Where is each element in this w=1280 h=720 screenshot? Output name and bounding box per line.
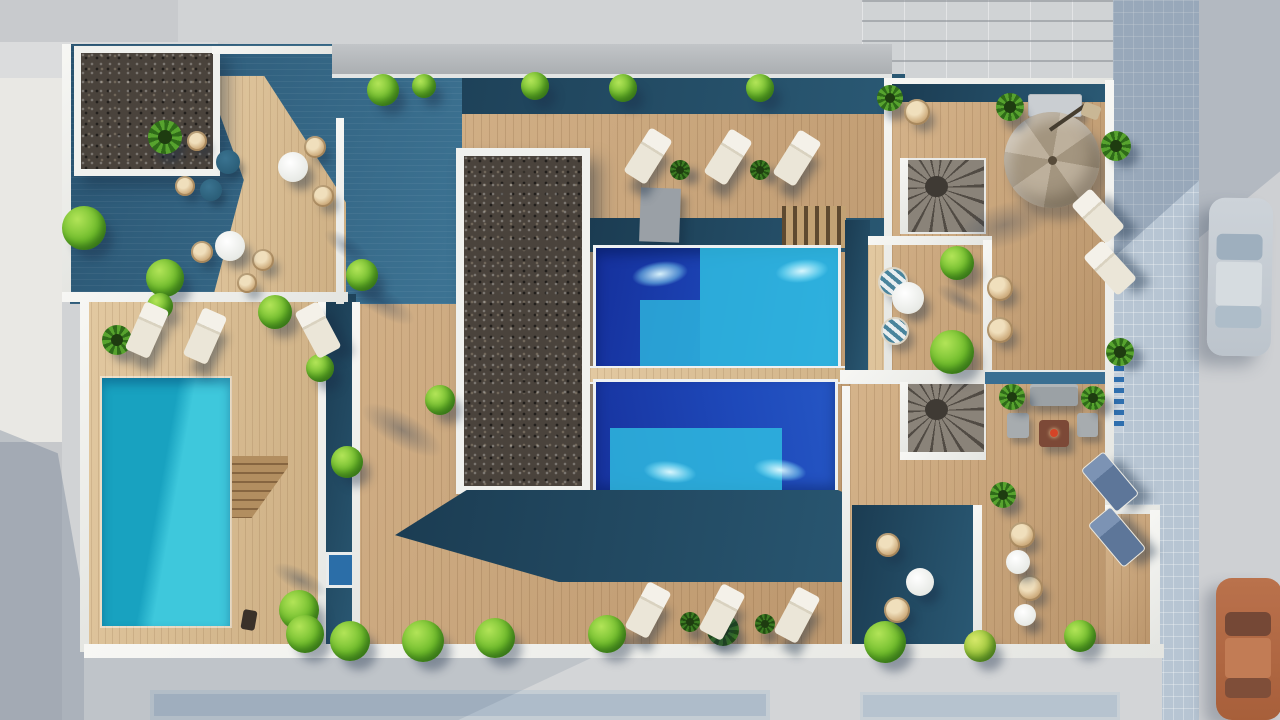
bush	[521, 72, 549, 100]
wicker-chair	[304, 136, 326, 158]
wicker-chair	[187, 131, 207, 151]
wicker-chair	[1009, 522, 1035, 548]
pool-steps-upper	[782, 206, 846, 248]
street-top-left-block	[0, 0, 178, 42]
car-shadow-overlay	[1216, 578, 1280, 720]
bush	[746, 74, 774, 102]
spiral-staircase-lower	[906, 382, 986, 456]
facade-panel-right	[860, 692, 1120, 720]
bush	[286, 615, 324, 653]
parapet	[900, 158, 908, 234]
wicker-chair	[237, 273, 257, 293]
bush	[930, 330, 974, 374]
parapet	[352, 302, 360, 652]
bush	[306, 354, 334, 382]
parapet	[1150, 510, 1160, 650]
round-table	[1014, 604, 1036, 626]
car-white	[1207, 197, 1274, 356]
bush	[402, 620, 444, 662]
car-orange	[1216, 578, 1280, 720]
parapet	[842, 386, 850, 644]
gravel-strip	[456, 148, 590, 494]
left-pool	[102, 378, 230, 626]
parapet	[62, 292, 348, 302]
round-table	[1006, 550, 1030, 574]
round-table	[278, 152, 308, 182]
wicker-chair	[252, 249, 274, 271]
round-table	[906, 568, 934, 596]
bush	[1064, 620, 1096, 652]
teal-strip-right	[845, 220, 870, 380]
striped-chair	[881, 317, 909, 345]
wicker-chair	[175, 176, 195, 196]
parapet	[212, 46, 338, 54]
umbrella-hub	[1048, 156, 1057, 165]
bush	[609, 74, 637, 102]
bush	[346, 259, 378, 291]
bush	[146, 259, 184, 297]
bush	[588, 615, 626, 653]
car-roof	[1215, 262, 1262, 307]
round-table	[892, 282, 924, 314]
bush	[62, 206, 106, 250]
round-table-teal	[200, 179, 222, 201]
parapet-bottom	[84, 644, 1164, 658]
neighbor-building-roof	[862, 0, 1113, 84]
round-table	[215, 231, 245, 261]
parapet	[840, 370, 992, 383]
armchair-left	[1007, 413, 1029, 438]
bush	[258, 295, 292, 329]
parapet	[62, 44, 71, 302]
car-windshield	[1216, 234, 1262, 261]
wicker-chair	[987, 317, 1013, 343]
bush	[331, 446, 363, 478]
pool-lower	[596, 382, 835, 492]
wicker-chair	[884, 597, 910, 623]
round-table-teal	[216, 150, 240, 174]
wicker-chair	[1017, 575, 1043, 601]
wicker-chair	[876, 533, 900, 557]
bush	[367, 74, 399, 106]
parapet	[868, 236, 992, 245]
divider-blue	[985, 372, 1112, 384]
wicker-chair	[904, 99, 930, 125]
bush	[940, 246, 974, 280]
outdoor-sofa	[1030, 384, 1078, 406]
car-rear-window	[1215, 306, 1261, 329]
left-building-band	[0, 78, 62, 442]
pool-upper-shelf2	[640, 300, 700, 368]
bush	[425, 385, 455, 415]
bush	[864, 621, 906, 663]
wicker-chair	[312, 185, 334, 207]
fire-table-flame	[1050, 429, 1058, 437]
pool-upper	[596, 248, 838, 368]
pool-caustic	[622, 253, 698, 295]
parapet	[900, 452, 986, 460]
wicker-chair	[987, 275, 1013, 301]
parapet	[900, 382, 908, 460]
bush	[475, 618, 515, 658]
parapet	[892, 78, 1113, 84]
equipment-slab	[639, 187, 681, 242]
gravel-square	[74, 46, 220, 176]
armchair-right	[1077, 413, 1098, 437]
parapet-top-gray	[332, 44, 892, 76]
wicker-chair	[191, 241, 213, 263]
bush	[412, 74, 436, 98]
parapet	[80, 300, 89, 652]
bush	[964, 630, 996, 662]
bush	[330, 621, 370, 661]
rooftop-aerial-render	[0, 0, 1280, 720]
